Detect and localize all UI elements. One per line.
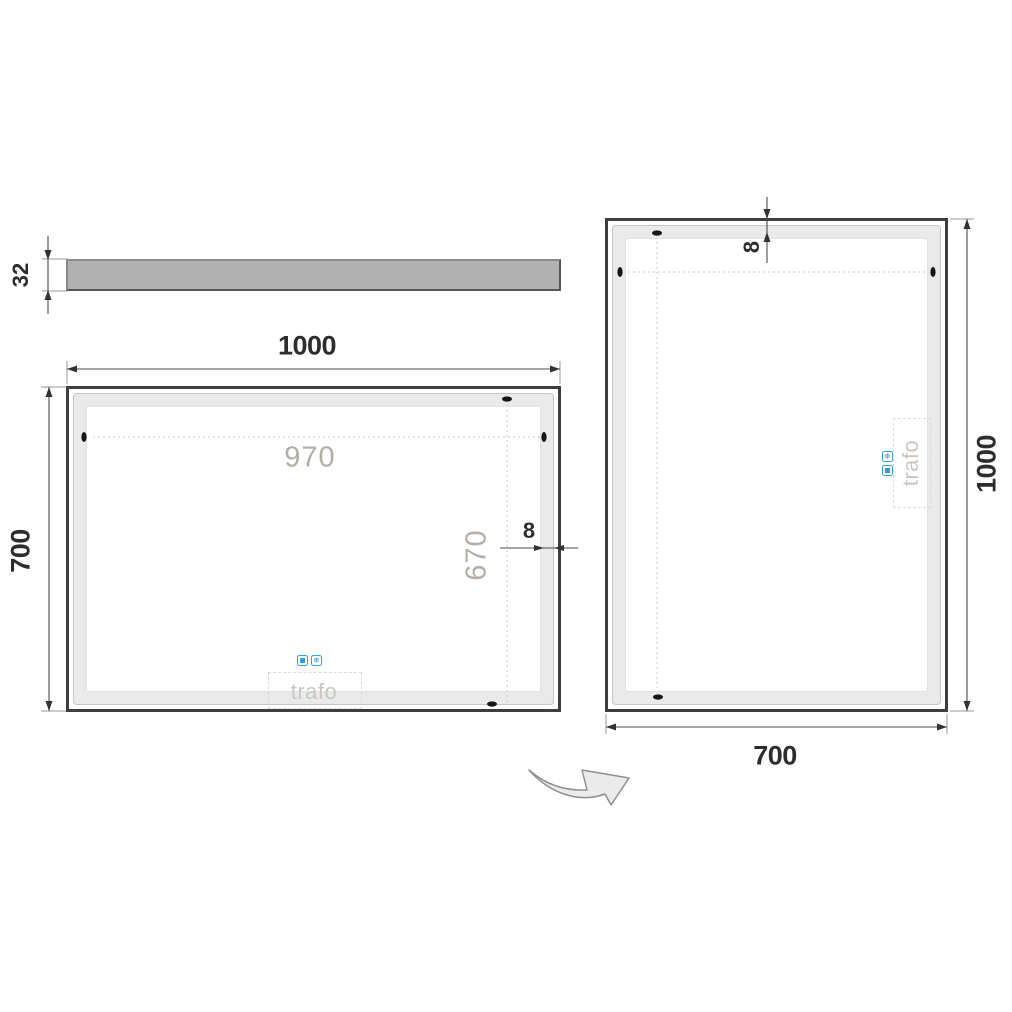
technical-drawing-canvas: 32 1000 700 970 670 8 trafo 700 1000 8 t… bbox=[0, 0, 1012, 1012]
front-trafo-label: trafo bbox=[291, 681, 338, 703]
thickness-dimension bbox=[42, 236, 68, 314]
front-led-height-label: 670 bbox=[463, 529, 492, 580]
touch-sensor-icon-rotated bbox=[882, 465, 893, 476]
front-width-label: 1000 bbox=[278, 333, 336, 360]
front-height-label: 700 bbox=[8, 529, 35, 573]
rotated-height-label: 1000 bbox=[974, 435, 1001, 493]
front-led-width-label: 970 bbox=[284, 444, 335, 473]
antifog-icon-rotated: ❄ bbox=[882, 451, 893, 462]
rotated-height-dimension bbox=[950, 219, 974, 711]
side-profile-bar bbox=[66, 259, 561, 291]
rotated-trafo-label: trafo bbox=[900, 440, 922, 487]
antifog-icon-rotated-glyph: ❄ bbox=[884, 453, 891, 461]
rotated-width-dimension bbox=[606, 714, 947, 734]
rotated-edge-offset-label: 8 bbox=[741, 241, 763, 253]
front-height-dimension bbox=[41, 387, 66, 711]
touch-sensor-icon-rotated-core bbox=[885, 468, 890, 473]
thickness-label: 32 bbox=[10, 263, 32, 287]
touch-sensor-icon-core bbox=[300, 658, 305, 663]
antifog-icon: ❄ bbox=[311, 655, 322, 666]
rotated-width-label: 700 bbox=[753, 743, 797, 770]
touch-sensor-icon bbox=[297, 655, 308, 666]
front-edge-offset-label: 8 bbox=[523, 520, 535, 542]
antifog-icon-glyph: ❄ bbox=[313, 657, 320, 665]
front-width-dimension bbox=[67, 361, 560, 384]
rotation-arrow bbox=[529, 770, 629, 805]
